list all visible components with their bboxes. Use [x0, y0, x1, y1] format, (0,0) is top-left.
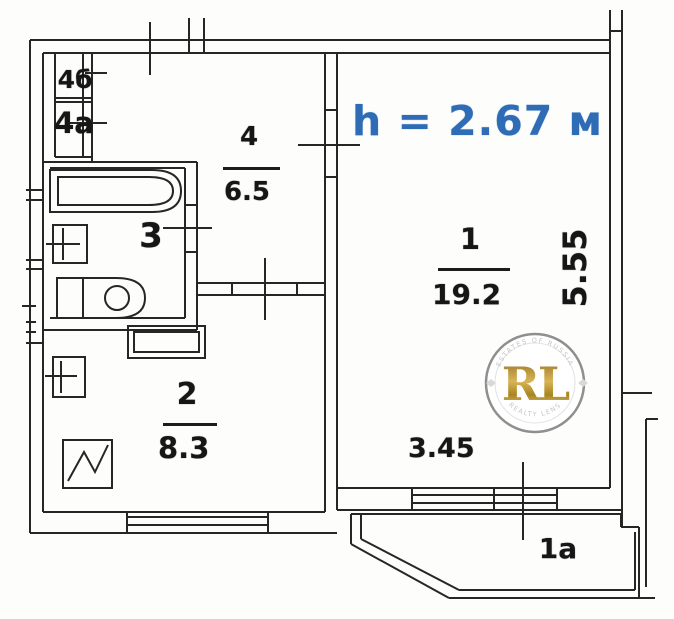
- room-2-area: 8.3: [158, 434, 208, 463]
- room-1-area: 19.2: [432, 281, 500, 309]
- bathtub-icon: [50, 170, 181, 212]
- radiator-icon: [45, 357, 85, 397]
- sink-icon: [46, 225, 87, 263]
- room-1-fraction-line: [438, 268, 510, 271]
- room-2-fraction-line: [163, 423, 217, 426]
- stove-icon: [63, 440, 112, 488]
- closet-4a-number: 4а: [54, 109, 94, 138]
- room-3-number: 3: [136, 219, 166, 253]
- room-1-depth-dimension: 5.55: [559, 226, 591, 310]
- floor-plan: ESTATES OF RUSSIA REALTY LENS RL h = 2.6…: [0, 0, 674, 619]
- ceiling-height-label: h = 2.67 м: [352, 97, 572, 145]
- balcony-1a-number: 1а: [537, 535, 579, 563]
- toilet-icon: [57, 278, 145, 318]
- watermark-initials: RL: [502, 357, 570, 411]
- room-1-number: 1: [450, 225, 490, 254]
- closet-4b-number: 4б: [55, 67, 95, 92]
- interior-walls: [43, 53, 337, 330]
- outer-walls: [30, 10, 622, 533]
- balcony-outline: [351, 419, 658, 598]
- room-4-number: 4: [229, 124, 269, 150]
- toilet-seat-icon: [105, 286, 129, 310]
- room-4-area: 6.5: [221, 179, 273, 205]
- room-1-width-dimension: 3.45: [408, 435, 472, 462]
- watermark-logo: ESTATES OF RUSSIA REALTY LENS RL: [486, 334, 588, 432]
- room-2-number: 2: [167, 380, 207, 410]
- room-4-fraction-line: [223, 167, 280, 170]
